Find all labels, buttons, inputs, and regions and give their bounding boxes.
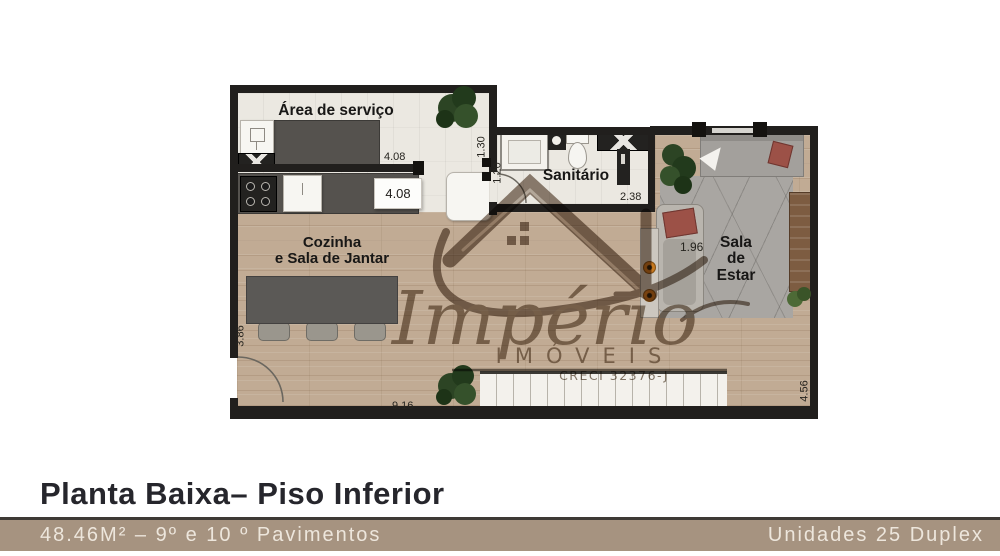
laundry-counter [272,120,380,170]
dim-kitchen-value: 4.08 [385,186,410,201]
sala-line2: de [696,251,776,267]
wall [230,164,420,172]
stove [240,176,277,212]
room-label-cozinha: Cozinha e Sala de Jantar [252,235,412,267]
dining-chair [258,322,290,341]
door-frame-mark [413,161,424,175]
area-info-text: 48.46M² – 9º e 10 º Pavimentos [40,524,381,547]
wall [230,85,238,358]
dim-right-side: 4.56 [799,380,811,401]
dim-left-side: 3.86 [235,325,247,346]
cozinha-line1: Cozinha [252,235,412,251]
decor-bowl-icon [643,289,656,302]
units-info-text: Unidades 25 Duplex [768,524,984,547]
blanket-fold-icon [699,141,728,171]
washing-machine [240,120,274,155]
tv-console [789,192,812,292]
washer-detail-line [256,141,257,150]
dim-passage: 1.30 [476,136,488,157]
dining-chair [354,322,386,341]
page-title: Planta Baixa– Piso Inferior [40,476,445,512]
door-hinge-mark [482,158,491,167]
floor-plan-page: 4.08 [0,0,1000,556]
wall [497,204,655,212]
wall [648,127,655,212]
dining-chair [306,322,338,341]
armchair-pillow [662,208,698,239]
door-frame-mark [692,122,706,137]
cozinha-line2: e Sala de Jantar [252,251,412,267]
dim-sanit-bottom: 2.38 [620,191,641,203]
sink-faucet-icon [302,183,303,195]
plant-tree-icon [436,365,482,409]
plant-tree-icon [436,86,483,131]
staircase [480,371,727,409]
dim-bottom: 9.16 [392,400,413,412]
shower-stall [500,133,549,171]
room-label-sala-estar: Sala de Estar [696,235,776,284]
sala-line3: Estar [696,268,776,284]
room-label-area-servico: Área de serviço [256,103,416,119]
dim-servico-top: 4.08 [384,151,405,163]
wall [497,127,655,135]
dim-chip-kitchen: 4.08 [374,178,422,209]
footer-bar: 48.46M² – 9º e 10 º Pavimentos Unidades … [0,517,1000,551]
washing-machine-door-icon [250,128,265,142]
room-label-sanitario: Sanitário [516,168,636,184]
window [712,128,754,133]
wall [230,406,818,419]
dim-sanit-left: 1.20 [492,162,504,183]
sala-line1: Sala [696,235,776,251]
kitchen-sink [283,175,322,212]
small-plant-icon [787,287,813,311]
door-hinge-mark [482,172,491,181]
wall [810,126,818,419]
decor-bowl-icon [643,261,656,274]
dim-sala: 1.96 [680,240,703,254]
living-plant-icon [658,144,702,194]
toilet [568,142,587,169]
door-frame-mark [753,122,767,137]
dining-table [246,276,398,324]
